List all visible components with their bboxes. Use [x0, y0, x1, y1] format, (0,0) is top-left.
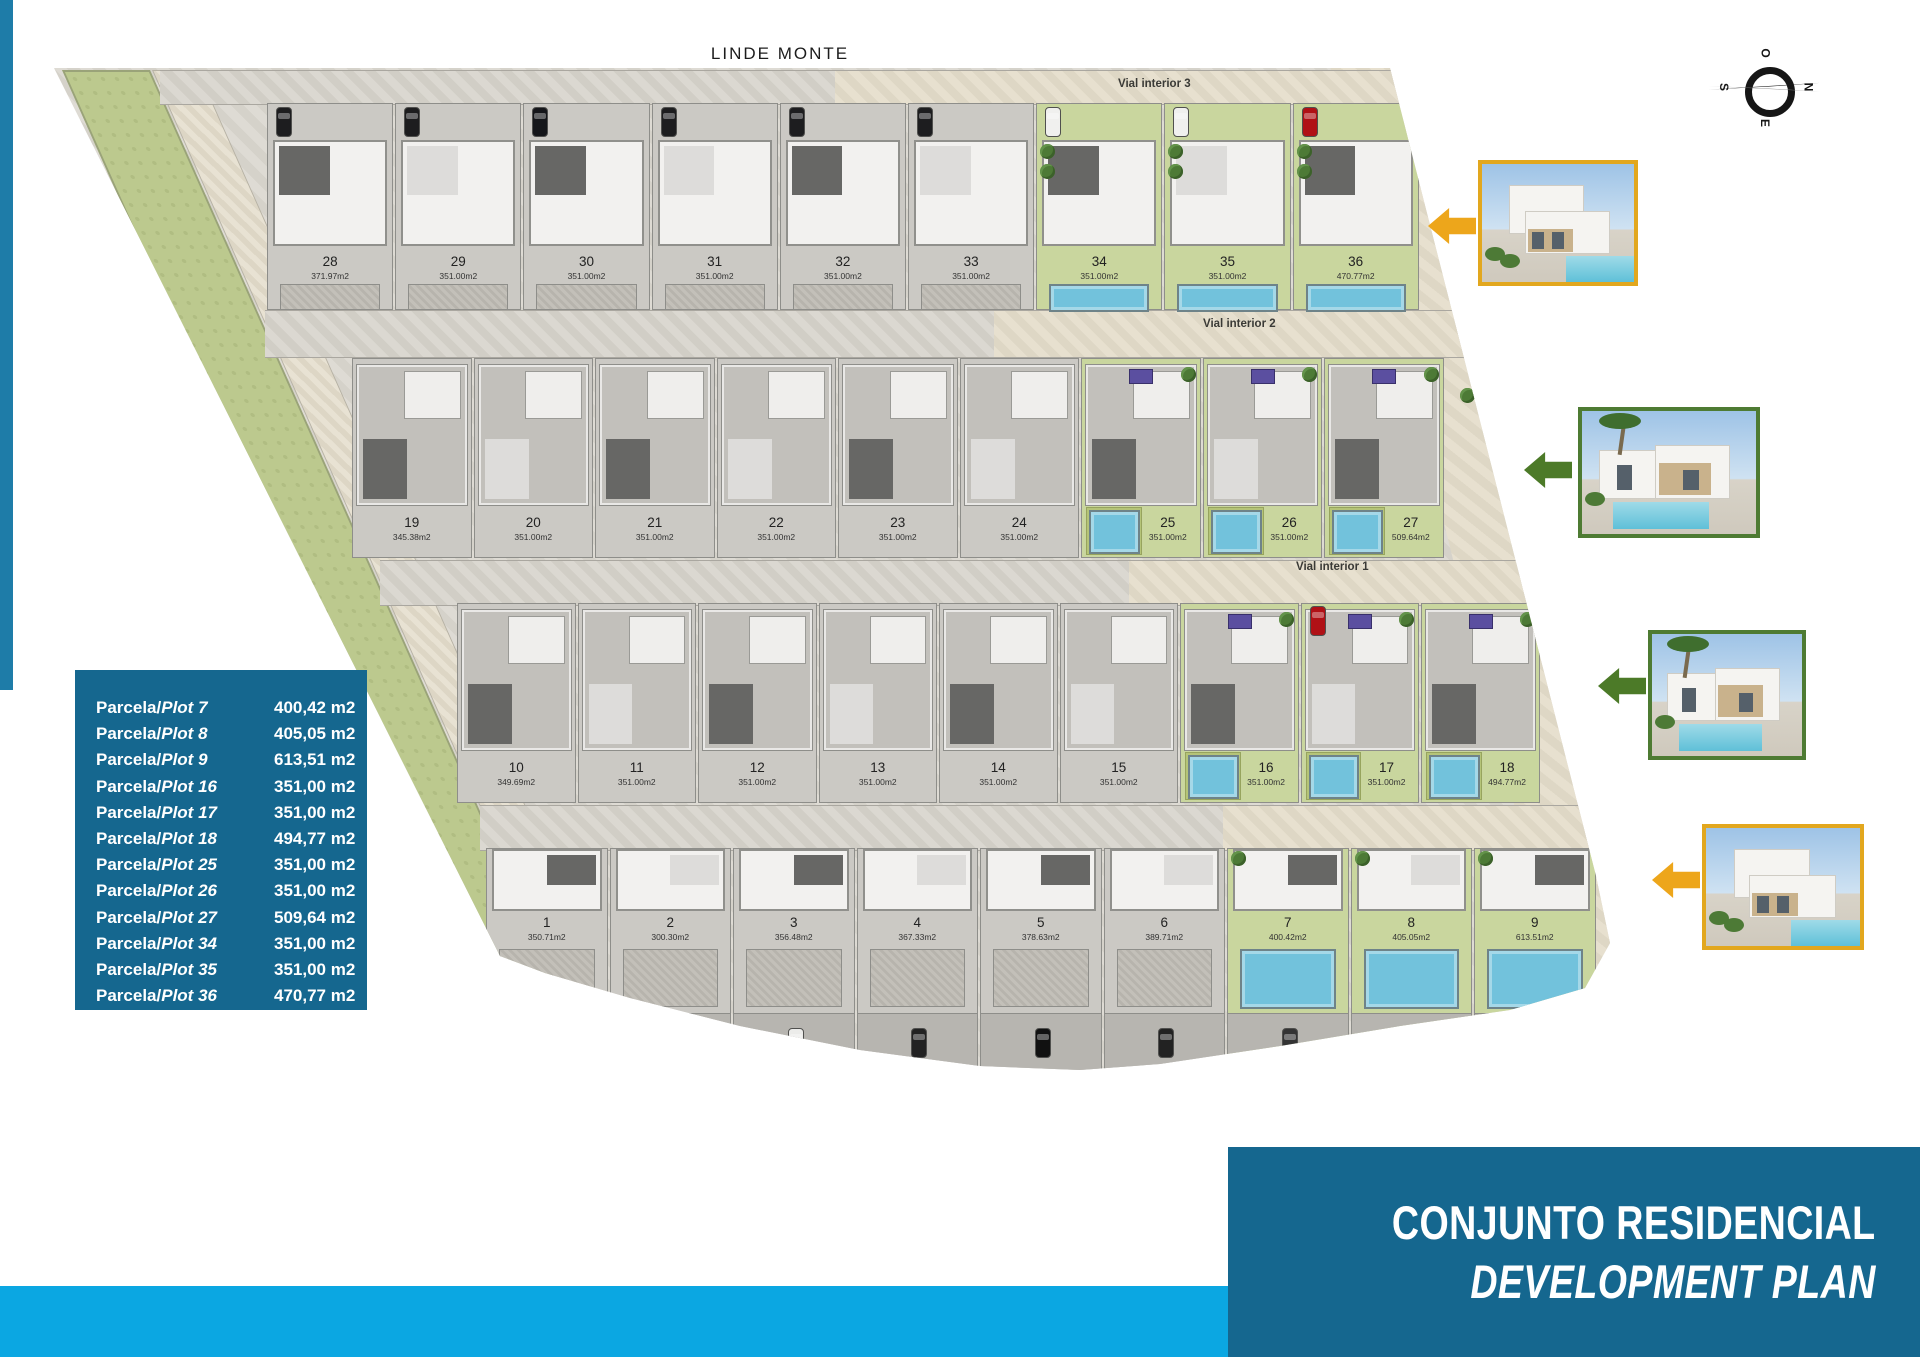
- legend-plot-label: Parcela/Plot 7: [96, 698, 274, 718]
- house: [357, 365, 467, 505]
- legend-plot-area: 351,00 m2: [274, 934, 355, 954]
- plot-cell-25: 25351.00m2: [1081, 358, 1201, 558]
- window: [1682, 688, 1696, 712]
- legend-plot-label: Parcela/Plot 26: [96, 881, 274, 901]
- plot-area: 351.00m2: [1136, 532, 1199, 542]
- legend-entry: Parcela/Plot 27509,64 m2: [96, 905, 367, 931]
- plot-number: 10: [458, 760, 575, 775]
- legend-plot-label: Parcela/Plot 35: [96, 960, 274, 980]
- plot-number: 20: [475, 515, 593, 530]
- tree-icon: [1405, 103, 1420, 118]
- legend-plot-label: Parcela/Plot 25: [96, 855, 274, 875]
- title-line-english: DEVELOPMENT PLAN: [1471, 1254, 1876, 1309]
- left-arrow-icon: [1524, 452, 1572, 488]
- legend-entry: Parcela/Plot 35351,00 m2: [96, 957, 367, 983]
- legend-entry: Parcela/Plot 18494,77 m2: [96, 826, 367, 852]
- villa-photo-4: [1702, 824, 1864, 950]
- roof-patch: [589, 684, 633, 744]
- car-icon: [1035, 1028, 1051, 1058]
- legend-plot-label: Parcela/Plot 27: [96, 908, 274, 928]
- plot-area: 351.00m2: [820, 777, 937, 787]
- photo-pool: [1679, 724, 1762, 751]
- tree-icon: [1560, 658, 1575, 673]
- title-line-spanish: CONJUNTO RESIDENCIAL: [1392, 1195, 1876, 1250]
- roof-terrace: [1011, 371, 1068, 419]
- legend-plot-label: Parcela/Plot 16: [96, 777, 274, 797]
- house: [616, 849, 726, 911]
- driveway: [734, 1013, 854, 1072]
- car-icon: [917, 107, 933, 137]
- roof-terrace: [749, 616, 805, 664]
- tree-icon: [1297, 164, 1312, 179]
- plot-area: 351.00m2: [653, 271, 777, 281]
- roof-patch: [485, 439, 529, 499]
- pool: [1211, 510, 1262, 554]
- car-icon: [1282, 1028, 1298, 1058]
- plot-number: 8: [1352, 915, 1472, 930]
- tree-icon: [1302, 367, 1317, 382]
- window: [1617, 465, 1633, 490]
- legend-entry: Parcela/Plot 26351,00 m2: [96, 878, 367, 904]
- plot-area: 351.00m2: [596, 532, 714, 542]
- solar-panel-icon: [1228, 614, 1252, 629]
- bush: [1655, 715, 1675, 729]
- roof-terrace: [1111, 616, 1167, 664]
- plot-cell-31: 31351.00m2: [652, 103, 778, 310]
- house: [462, 610, 571, 750]
- tree-icon: [1181, 367, 1196, 382]
- house: [583, 610, 692, 750]
- tree-icon: [1279, 612, 1294, 627]
- plot-number: 15: [1061, 760, 1178, 775]
- plot-area: 351.00m2: [1235, 777, 1298, 787]
- plot-number: 16: [1235, 760, 1298, 775]
- legend-entry: Parcela/Plot 9613,51 m2: [96, 747, 367, 773]
- plot-cell-28: 28371.97m2: [267, 103, 393, 310]
- plot-cell-34: 34351.00m2: [1036, 103, 1162, 310]
- plot-number: 14: [940, 760, 1057, 775]
- plot-area: 367.33m2: [858, 932, 978, 942]
- car-icon: [404, 107, 420, 137]
- roof-patch: [1535, 855, 1584, 885]
- plot-cell-1: 1350.71m2: [486, 848, 608, 1073]
- house: [529, 140, 643, 246]
- plot-area: 351.00m2: [1061, 777, 1178, 787]
- plot-number: 21: [596, 515, 714, 530]
- legend-plot-label: Parcela/Plot 17: [96, 803, 274, 823]
- roof-patch: [535, 146, 586, 195]
- plot-cell-9: 9613.51m2: [1474, 848, 1596, 1073]
- plot-cell-16: 16351.00m2: [1180, 603, 1299, 803]
- plot-number: 2: [611, 915, 731, 930]
- roof-terrace: [768, 371, 825, 419]
- house: [1065, 610, 1174, 750]
- compass-ring: [1745, 67, 1795, 117]
- legend-plot-area: 509,64 m2: [274, 908, 355, 928]
- house: [722, 365, 832, 505]
- plot-cell-10: 10349.69m2: [457, 603, 576, 803]
- plot-number: 34: [1037, 254, 1161, 269]
- house: [914, 140, 1028, 246]
- plot-cell-36: 36470.77m2: [1293, 103, 1419, 310]
- legend-plot-area: 351,00 m2: [274, 777, 355, 797]
- house: [600, 365, 710, 505]
- plot-area: 351.00m2: [781, 271, 905, 281]
- plot-area: 351.00m2: [1355, 777, 1418, 787]
- roof-terrace: [629, 616, 685, 664]
- plot-area: 509.64m2: [1379, 532, 1442, 542]
- plot-area: 351.00m2: [579, 777, 696, 787]
- legend-entry: Parcela/Plot 16351,00 m2: [96, 774, 367, 800]
- plot-number: 26: [1258, 515, 1321, 530]
- plot-cell-12: 12351.00m2: [698, 603, 817, 803]
- roof-patch: [279, 146, 330, 195]
- plot-number: 19: [353, 515, 471, 530]
- plot-area: 345.38m2: [353, 532, 471, 542]
- plot-cell-26: 26351.00m2: [1203, 358, 1323, 558]
- legend-plot-area: 613,51 m2: [274, 750, 355, 770]
- roof-terrace: [870, 616, 926, 664]
- villa-photo-2: [1578, 407, 1760, 538]
- plot-cell-11: 11351.00m2: [578, 603, 697, 803]
- plot-area: 351.00m2: [524, 271, 648, 281]
- driveway: [1352, 1013, 1472, 1072]
- roof-patch: [547, 855, 596, 885]
- plot-cell-13: 13351.00m2: [819, 603, 938, 803]
- tree-icon: [1355, 851, 1370, 866]
- plot-size-legend: Parcela/Plot 7400,42 m2Parcela/Plot 8405…: [75, 670, 367, 1010]
- plot-area: 613.51m2: [1475, 932, 1595, 942]
- road-label-vial-2: Vial interior 2: [1203, 318, 1276, 330]
- bush: [1585, 492, 1605, 506]
- plot-number: 7: [1228, 915, 1348, 930]
- legend-entry: Parcela/Plot 36470,77 m2: [96, 983, 367, 1009]
- photo-pool: [1566, 256, 1634, 282]
- plot-cell-17: 17351.00m2: [1301, 603, 1420, 803]
- terrace: [1117, 949, 1213, 1007]
- house: [1185, 610, 1294, 750]
- plot-area: 351.00m2: [1037, 271, 1161, 281]
- photo-pool: [1613, 502, 1709, 529]
- tree-icon: [1399, 612, 1414, 627]
- left-arrow-icon: [1598, 668, 1646, 704]
- road-label-vial-3: Vial interior 3: [1118, 78, 1191, 90]
- roof-patch: [917, 855, 966, 885]
- legend-plot-label: Parcela/Plot 9: [96, 750, 274, 770]
- plot-area: 351.00m2: [1258, 532, 1321, 542]
- driveway: [1228, 1013, 1348, 1072]
- house: [479, 365, 589, 505]
- roof-patch: [407, 146, 458, 195]
- legend-entry: Parcela/Plot 25351,00 m2: [96, 852, 367, 878]
- house: [863, 849, 973, 911]
- roof-patch: [950, 684, 994, 744]
- tree-icon: [1478, 851, 1493, 866]
- solar-panel-icon: [1348, 614, 1372, 629]
- plot-cell-32: 32351.00m2: [780, 103, 906, 310]
- roof-patch: [1288, 855, 1337, 885]
- car-icon: [788, 1028, 804, 1058]
- plot-cell-7: 7400.42m2: [1227, 848, 1349, 1073]
- plot-number: 27: [1379, 515, 1442, 530]
- plot-number: 6: [1105, 915, 1225, 930]
- plot-number: 25: [1136, 515, 1199, 530]
- plot-number: 9: [1475, 915, 1595, 930]
- driveway: [487, 1013, 607, 1072]
- house: [492, 849, 602, 911]
- legend-entry: Parcela/Plot 34351,00 m2: [96, 931, 367, 957]
- plot-row-1: 28371.97m229351.00m230351.00m231351.00m2…: [40, 103, 1680, 310]
- plot-number: 29: [396, 254, 520, 269]
- plot-cell-35: 35351.00m2: [1164, 103, 1290, 310]
- plot-area: 351.00m2: [940, 777, 1057, 787]
- roof-patch: [1305, 146, 1356, 195]
- roof-patch: [709, 684, 753, 744]
- roof-patch: [849, 439, 893, 499]
- legend-plot-label: Parcela/Plot 8: [96, 724, 274, 744]
- plot-number: 23: [839, 515, 957, 530]
- legend-plot-area: 494,77 m2: [274, 829, 355, 849]
- pool: [1188, 755, 1239, 799]
- house: [1480, 849, 1590, 911]
- compass-east-label: E: [1758, 119, 1772, 127]
- terrace: [993, 949, 1089, 1007]
- plot-number: 13: [820, 760, 937, 775]
- plot-number: 4: [858, 915, 978, 930]
- solar-panel-icon: [1251, 369, 1275, 384]
- driveway: [1475, 1013, 1595, 1072]
- tree-icon: [1297, 144, 1312, 159]
- plot-area: 494.77m2: [1476, 777, 1539, 787]
- roof-patch: [670, 855, 719, 885]
- plot-cell-14: 14351.00m2: [939, 603, 1058, 803]
- terrace: [280, 284, 380, 310]
- bush: [1500, 254, 1520, 268]
- roof-patch: [1071, 684, 1115, 744]
- car-icon: [1529, 1028, 1545, 1058]
- roof-patch: [1048, 146, 1099, 195]
- pool: [1364, 949, 1460, 1009]
- photo-pool: [1791, 920, 1860, 946]
- car-icon: [1045, 107, 1061, 137]
- roof-patch: [1432, 684, 1476, 744]
- house: [944, 610, 1053, 750]
- road-vial-interior-3: [160, 70, 1410, 105]
- road-vial-interior-1: [380, 560, 1550, 606]
- house: [703, 610, 812, 750]
- roof-patch: [1312, 684, 1356, 744]
- house: [739, 849, 849, 911]
- house: [1042, 140, 1156, 246]
- solar-panel-icon: [1129, 369, 1153, 384]
- roof-patch: [792, 146, 843, 195]
- plot-number: 18: [1476, 760, 1539, 775]
- house: [273, 140, 387, 246]
- plot-number: 33: [909, 254, 1033, 269]
- driveway: [858, 1013, 978, 1072]
- roof-patch: [1335, 439, 1379, 499]
- house: [1110, 849, 1220, 911]
- pool: [1240, 949, 1336, 1009]
- legend-plot-label: Parcela/Plot 36: [96, 986, 274, 1006]
- roof-terrace: [508, 616, 564, 664]
- pool: [1487, 949, 1583, 1009]
- legend-plot-area: 351,00 m2: [274, 855, 355, 875]
- window: [1552, 232, 1564, 249]
- legend-entry: Parcela/Plot 7400,42 m2: [96, 695, 367, 721]
- pool: [1332, 510, 1383, 554]
- driveway: [611, 1013, 731, 1072]
- pool: [1177, 284, 1277, 312]
- terrace: [623, 949, 719, 1007]
- solar-panel-icon: [1372, 369, 1396, 384]
- house: [843, 365, 953, 505]
- window: [1532, 232, 1544, 249]
- plot-area: 350.71m2: [487, 932, 607, 942]
- roof-patch: [830, 684, 874, 744]
- roof-patch: [920, 146, 971, 195]
- road-beige-section: [1223, 806, 1606, 850]
- plot-area: 356.48m2: [734, 932, 854, 942]
- car-icon: [1302, 107, 1318, 137]
- car-icon: [664, 1028, 680, 1058]
- window: [1739, 693, 1753, 713]
- house: [1357, 849, 1467, 911]
- pool: [1089, 510, 1140, 554]
- palm-fronds: [1599, 413, 1641, 429]
- pool: [1306, 284, 1406, 312]
- legend-entry: Parcela/Plot 17351,00 m2: [96, 800, 367, 826]
- plot-area: 371.97m2: [268, 271, 392, 281]
- house: [824, 610, 933, 750]
- plot-cell-24: 24351.00m2: [960, 358, 1080, 558]
- roof-terrace: [990, 616, 1046, 664]
- plot-cell-30: 30351.00m2: [523, 103, 649, 310]
- boundary-label: LINDE MONTE: [0, 44, 1560, 64]
- plot-area: 351.00m2: [475, 532, 593, 542]
- plot-cell-18: 18494.77m2: [1421, 603, 1540, 803]
- roof-terrace: [404, 371, 461, 419]
- house: [965, 365, 1075, 505]
- terrace: [408, 284, 508, 310]
- roof-patch: [1092, 439, 1136, 499]
- plot-area: 470.77m2: [1294, 271, 1418, 281]
- plot-cell-20: 20351.00m2: [474, 358, 594, 558]
- plot-area: 405.05m2: [1352, 932, 1472, 942]
- plot-cell-21: 21351.00m2: [595, 358, 715, 558]
- car-icon: [532, 107, 548, 137]
- car-icon: [911, 1028, 927, 1058]
- driveway: [981, 1013, 1101, 1072]
- legend-plot-area: 351,00 m2: [274, 881, 355, 901]
- house: [1329, 365, 1439, 505]
- plot-cell-22: 22351.00m2: [717, 358, 837, 558]
- roof-patch: [1191, 684, 1235, 744]
- plot-number: 1: [487, 915, 607, 930]
- plot-area: 351.00m2: [396, 271, 520, 281]
- road-vial-interior-2: [265, 310, 1480, 358]
- plot-cell-8: 8405.05m2: [1351, 848, 1473, 1073]
- terrace: [921, 284, 1021, 310]
- plot-number: 11: [579, 760, 696, 775]
- plot-cell-3: 3356.48m2: [733, 848, 855, 1073]
- terrace: [870, 949, 966, 1007]
- plot-cell-33: 33351.00m2: [908, 103, 1034, 310]
- title-block: CONJUNTO RESIDENCIAL DEVELOPMENT PLAN: [1228, 1147, 1920, 1357]
- road-label-vial-1: Vial interior 1: [1296, 561, 1369, 573]
- roof-patch: [728, 439, 772, 499]
- car-icon: [541, 1028, 557, 1058]
- plot-cell-27: 27509.64m2: [1324, 358, 1444, 558]
- plot-number: 28: [268, 254, 392, 269]
- road-bottom: [480, 805, 1605, 851]
- development-plan-page: { "header": { "top_label": "LINDE MONTE"…: [0, 0, 1920, 1357]
- house: [1208, 365, 1318, 505]
- legend-plot-area: 470,77 m2: [274, 986, 355, 1006]
- plot-area: 349.69m2: [458, 777, 575, 787]
- roof-patch: [1164, 855, 1213, 885]
- roof-patch: [1041, 855, 1090, 885]
- plot-area: 400.42m2: [1228, 932, 1348, 942]
- plot-area: 351.00m2: [699, 777, 816, 787]
- terrace: [499, 949, 595, 1007]
- legend-plot-area: 405,05 m2: [274, 724, 355, 744]
- roof-patch: [971, 439, 1015, 499]
- legend-entry: Parcela/Plot 8405,05 m2: [96, 721, 367, 747]
- roof-patch: [794, 855, 843, 885]
- house: [1426, 610, 1535, 750]
- plot-number: 12: [699, 760, 816, 775]
- tree-icon: [1231, 851, 1246, 866]
- plot-area: 378.63m2: [981, 932, 1101, 942]
- plot-number: 32: [781, 254, 905, 269]
- plot-number: 35: [1165, 254, 1289, 269]
- pool: [1429, 755, 1480, 799]
- house: [1170, 140, 1284, 246]
- compass-rose: O N E S: [1712, 40, 1822, 140]
- legend-plot-area: 400,42 m2: [274, 698, 355, 718]
- villa-photo-1: [1478, 160, 1638, 286]
- plot-cell-2: 2300.30m2: [610, 848, 732, 1073]
- roof-patch: [1176, 146, 1227, 195]
- legend-plot-label: Parcela/Plot 18: [96, 829, 274, 849]
- plot-cell-5: 5378.63m2: [980, 848, 1102, 1073]
- house: [1299, 140, 1413, 246]
- plot-cell-4: 4367.33m2: [857, 848, 979, 1073]
- house: [658, 140, 772, 246]
- plot-row-2: 19345.38m220351.00m221351.00m222351.00m2…: [40, 358, 1680, 558]
- palm-fronds: [1667, 636, 1709, 652]
- window: [1777, 896, 1789, 913]
- plot-cell-19: 19345.38m2: [352, 358, 472, 558]
- left-arrow-icon: [1652, 862, 1700, 898]
- roof-patch: [1214, 439, 1258, 499]
- left-arrow-icon: [1428, 208, 1476, 244]
- roof-terrace: [890, 371, 947, 419]
- legend-plot-area: 351,00 m2: [274, 803, 355, 823]
- car-icon: [661, 107, 677, 137]
- roof-terrace: [525, 371, 582, 419]
- car-icon: [1405, 1028, 1421, 1058]
- terrace: [793, 284, 893, 310]
- plot-number: 17: [1355, 760, 1418, 775]
- roof-patch: [363, 439, 407, 499]
- roof-patch: [606, 439, 650, 499]
- tree-icon: [1520, 612, 1535, 627]
- plot-cell-29: 29351.00m2: [395, 103, 521, 310]
- plot-area: 351.00m2: [961, 532, 1079, 542]
- car-icon: [789, 107, 805, 137]
